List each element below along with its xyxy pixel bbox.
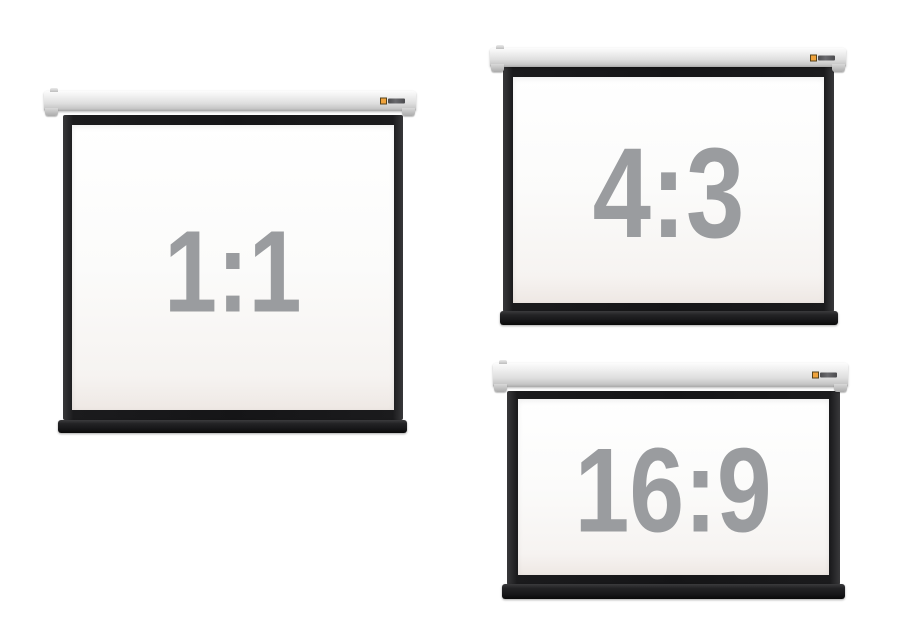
weight-bar (502, 584, 845, 599)
logo-wordmark (818, 55, 835, 60)
product-photo-projection-screens: 1:1 4:3 (0, 0, 900, 637)
projection-screen-4-3: 4:3 (490, 48, 846, 326)
casing-end-cap-left (494, 384, 507, 392)
mount-bracket (50, 88, 58, 92)
screen-frame: 4:3 (503, 67, 834, 312)
screen-surface: 4:3 (513, 77, 824, 303)
mount-bracket (499, 360, 507, 364)
brand-logo-icon (811, 55, 835, 60)
screen-frame: 1:1 (63, 115, 403, 420)
screen-surface: 16:9 (518, 399, 829, 575)
logo-accent-square (811, 55, 816, 60)
casing-end-cap-left (45, 108, 58, 116)
brand-logo-icon (381, 99, 405, 104)
aspect-ratio-label: 4:3 (593, 130, 745, 258)
roller-casing (493, 363, 848, 387)
logo-accent-square (381, 99, 386, 104)
logo-wordmark (820, 373, 837, 378)
casing-end-cap-right (402, 108, 415, 116)
roller-casing (44, 91, 416, 111)
projection-screen-16-9: 16:9 (493, 363, 848, 600)
screen-frame: 16:9 (507, 391, 840, 585)
aspect-ratio-label: 1:1 (164, 213, 301, 329)
casing-end-cap-right (834, 384, 847, 392)
logo-accent-square (813, 373, 818, 378)
casing-end-cap-left (491, 64, 504, 72)
weight-bar (500, 311, 838, 325)
roller-casing (490, 48, 846, 67)
screen-surface: 1:1 (72, 125, 394, 410)
projection-screen-1-1: 1:1 (44, 91, 416, 433)
casing-end-cap-right (832, 64, 845, 72)
brand-logo-icon (813, 373, 837, 378)
mount-bracket (496, 45, 504, 49)
aspect-ratio-label: 16:9 (575, 431, 772, 551)
weight-bar (58, 420, 407, 433)
logo-wordmark (388, 99, 405, 104)
